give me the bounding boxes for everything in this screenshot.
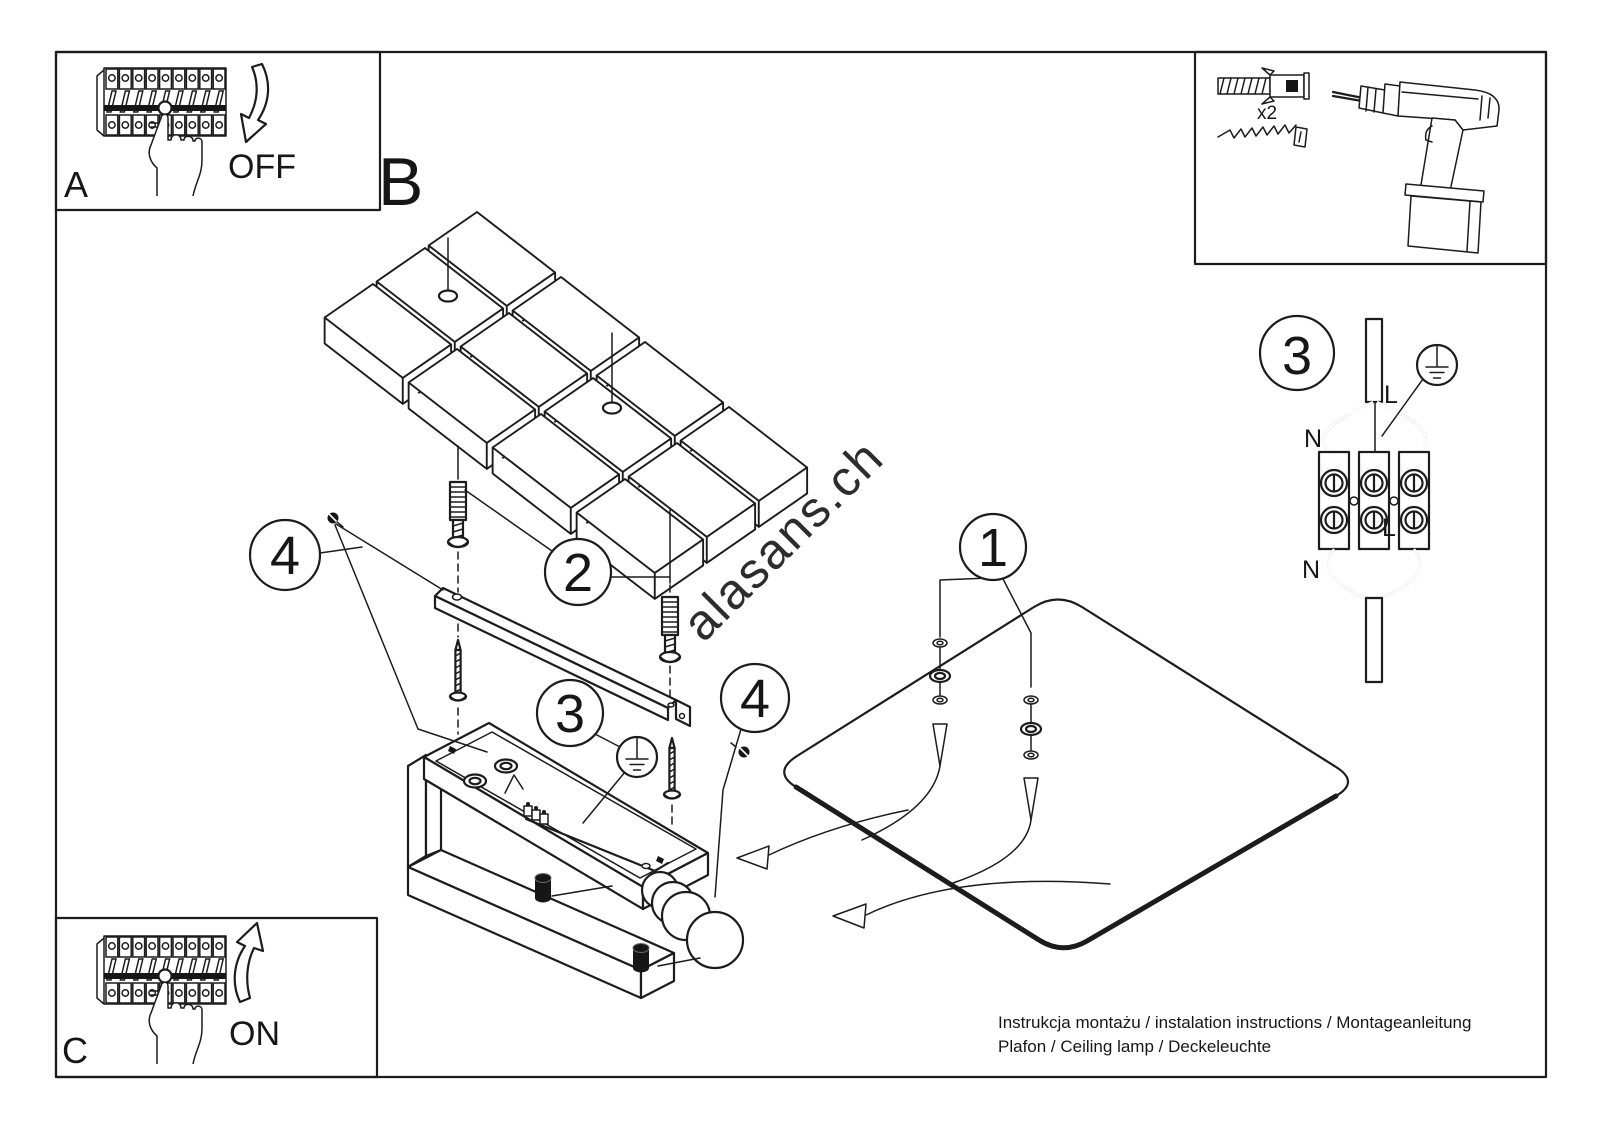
down-arrow-icon (1024, 778, 1038, 820)
lamp-cable (1366, 598, 1382, 682)
svg-text:3: 3 (555, 684, 585, 744)
mounting-screw-icon (450, 640, 466, 701)
step-b-label: B (378, 144, 423, 220)
wires-top (1324, 402, 1426, 452)
svg-text:3: 3 (1282, 326, 1312, 386)
off-arrow-icon (241, 64, 268, 142)
wall-plug-screw-icon (448, 482, 468, 547)
callout-screws-left: 4 (250, 520, 320, 590)
ground-symbol-icon (617, 737, 657, 777)
step-c-box: C ON (56, 918, 377, 1077)
instruction-sheet: alasans.ch A OFF C ON x2 (0, 0, 1600, 1131)
screw-icon (1218, 125, 1307, 147)
supply-cable (1366, 319, 1382, 402)
wires-bottom (1328, 549, 1420, 599)
circuit-breaker-icon (97, 68, 226, 196)
diffuser-panel-detail: 1 (737, 514, 1348, 948)
n-bottom-label: N (1302, 556, 1320, 584)
step-a-box: A OFF (56, 52, 380, 210)
on-label: ON (229, 1015, 280, 1053)
down-arrow-icon (933, 724, 947, 766)
callout-panel: 1 (960, 514, 1026, 580)
drill-icon (1333, 82, 1499, 253)
off-label: OFF (228, 148, 296, 186)
n-top-label: N (1304, 425, 1322, 453)
l-top-label: L (1384, 381, 1398, 409)
on-arrow-icon (235, 923, 263, 1002)
wiring-detail: 3 L N L N (1260, 316, 1457, 682)
mounting-chain-left (448, 446, 468, 734)
svg-text:2: 2 (563, 543, 593, 603)
diffuser-panel (784, 600, 1348, 948)
svg-text:4: 4 (270, 526, 300, 586)
callout-anchors: 2 (545, 539, 611, 605)
washer-icon (464, 775, 486, 788)
step-c-label: C (62, 1030, 88, 1071)
mounting-screw-icon (664, 738, 680, 799)
ground-symbol-icon (1417, 345, 1457, 385)
wall-plug-icon (1218, 68, 1309, 104)
fastener-stack-2 (953, 696, 1041, 883)
circuit-breaker-icon (97, 936, 226, 1064)
anchor-qty-label: x2 (1257, 103, 1277, 124)
l-mid-label: L (1382, 514, 1396, 542)
panel-edge (796, 787, 1336, 948)
arrow-head-icon (737, 846, 769, 869)
wall-plug-screw-icon (660, 597, 680, 662)
callout-ground: 3 (537, 680, 603, 746)
footer-line-2: Plafon / Ceiling lamp / Deckeleuchte (998, 1037, 1271, 1056)
callout-screws-right: 4 (721, 664, 789, 732)
terminal-block (1319, 452, 1429, 549)
diagram-canvas: alasans.ch A OFF C ON x2 (0, 0, 1600, 1131)
svg-text:1: 1 (978, 518, 1008, 578)
footer-line-1: Instrukcja montażu / instalation instruc… (998, 1013, 1471, 1032)
callout-wiring-detail: 3 (1260, 316, 1334, 390)
arrow-head-icon (833, 904, 866, 928)
svg-text:4: 4 (740, 669, 770, 729)
washer-icon (495, 760, 517, 773)
step-a-label: A (64, 164, 88, 205)
tools-box: x2 (1195, 52, 1546, 264)
